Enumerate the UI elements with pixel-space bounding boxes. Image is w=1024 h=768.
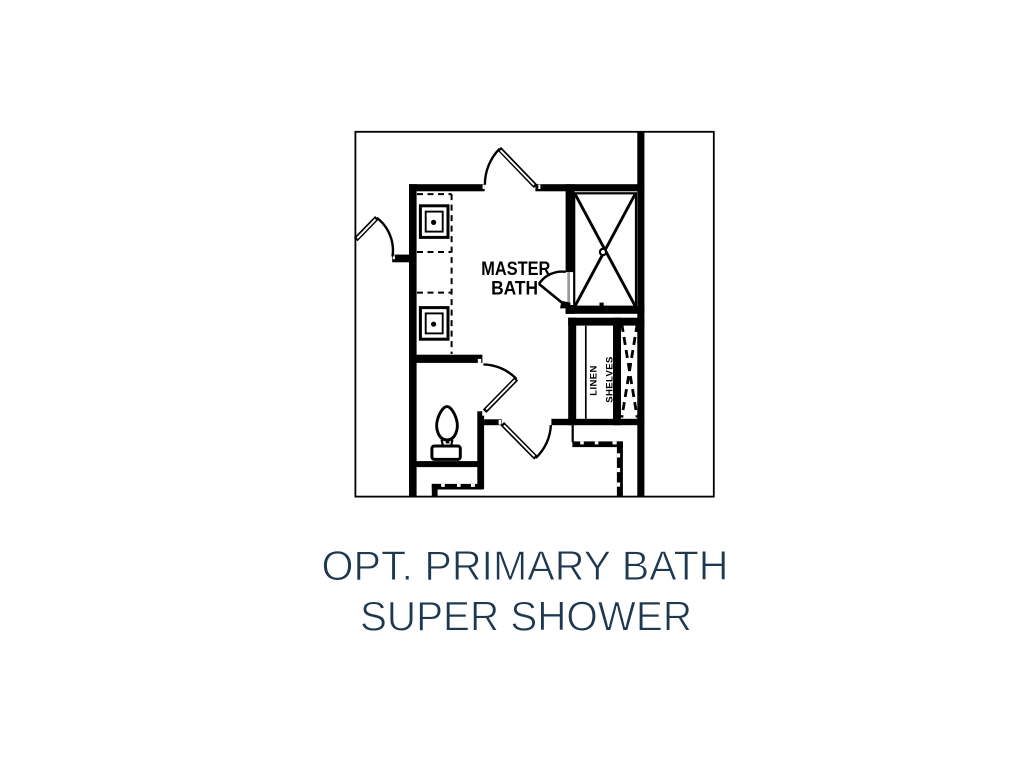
- svg-text:LINEN: LINEN: [589, 365, 600, 396]
- svg-text:SUPER SHOWER: SUPER SHOWER: [360, 593, 692, 640]
- svg-text:MASTER: MASTER: [481, 259, 550, 280]
- svg-text:OPT. PRIMARY BATH: OPT. PRIMARY BATH: [322, 542, 729, 589]
- svg-text:BATH: BATH: [491, 279, 538, 300]
- svg-text:SHELVES: SHELVES: [604, 356, 615, 402]
